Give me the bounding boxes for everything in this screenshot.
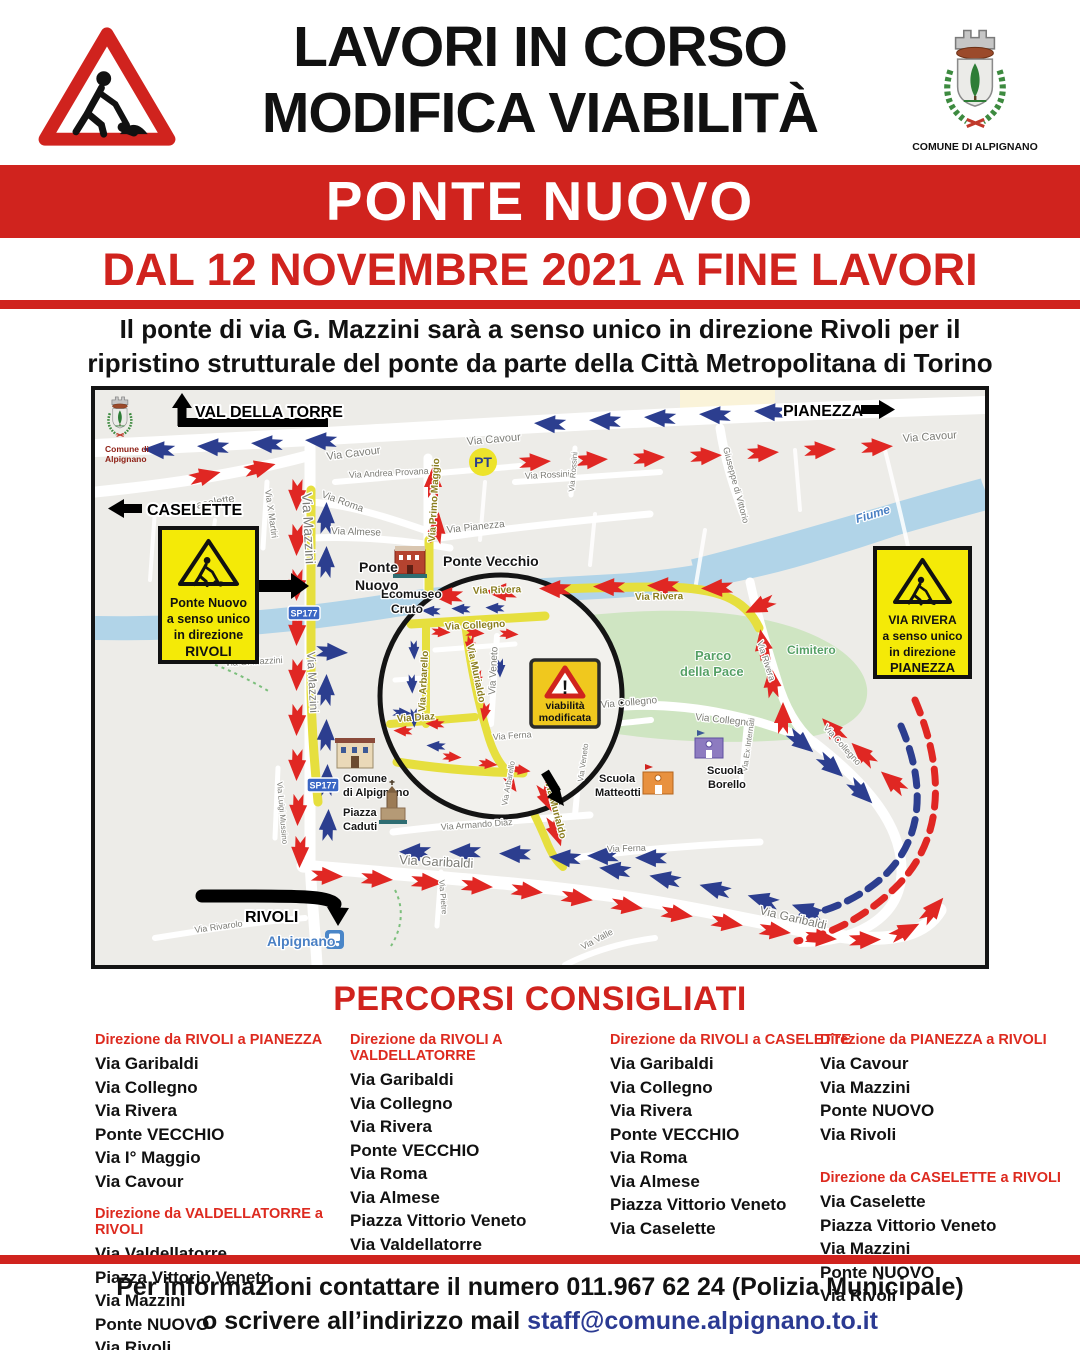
route-section-header: Direzione da VALDELLATORRE a RIVOLI bbox=[95, 1206, 345, 1238]
poi-label: Borello bbox=[708, 779, 746, 791]
exclamation-icon: ! bbox=[562, 678, 568, 699]
road-badge-sp177: SP177 bbox=[307, 778, 339, 792]
route-section-header: Direzione da CASELETTE a RIVOLI bbox=[820, 1170, 1070, 1186]
routes-title: PERCORSI CONSIGLIATI bbox=[0, 980, 1080, 1019]
road-badge-sp177: SP177 bbox=[288, 606, 320, 620]
poi-label-ponte-nuovo: Ponte bbox=[359, 559, 398, 575]
svg-text:SP177: SP177 bbox=[309, 781, 336, 791]
route-item: Ponte NUOVO bbox=[820, 1099, 1070, 1123]
poi-label-ponte-vecchio: Ponte Vecchio bbox=[443, 553, 539, 569]
route-item: Via Rivera bbox=[95, 1099, 345, 1123]
route-item: Via I° Maggio bbox=[95, 1146, 345, 1170]
route-section-header: Direzione da RIVOLI a PIANEZZA bbox=[95, 1032, 345, 1048]
poster: LAVORI IN CORSO MODIFICA VIABILITÀ COMUN… bbox=[0, 0, 1080, 1350]
municipality-crest: COMUNE DI ALPIGNANO bbox=[905, 20, 1045, 153]
poi-label: di Alpignano bbox=[343, 787, 409, 799]
poi-label-ponte-nuovo: Nuovo bbox=[355, 577, 399, 593]
route-item: Piazza Vittorio Veneto bbox=[820, 1214, 1070, 1238]
svg-text:Ponte Nuovo: Ponte Nuovo bbox=[170, 596, 247, 610]
route-item: Piazza Vittorio Veneto bbox=[350, 1209, 600, 1233]
roadworks-triangle-sign bbox=[38, 24, 176, 152]
warning-sign-via-rivera: VIA RIVERA a senso unico in direzione PI… bbox=[875, 548, 970, 677]
title-line-1: LAVORI IN CORSO bbox=[180, 14, 900, 80]
svg-text:in direzione: in direzione bbox=[174, 628, 244, 642]
date-line: DAL 12 NOVEMBRE 2021 A FINE LAVORI bbox=[0, 244, 1080, 296]
banner-ponte-nuovo: PONTE NUOVO bbox=[0, 165, 1080, 238]
route-item: Via Mazzini bbox=[820, 1076, 1070, 1100]
ecomuseo-building-icon bbox=[393, 546, 427, 578]
crest-icon bbox=[929, 20, 1021, 134]
svg-text:Alpignano: Alpignano bbox=[105, 454, 147, 464]
svg-text:modificata: modificata bbox=[539, 712, 592, 724]
crest-caption: COMUNE DI ALPIGNANO bbox=[905, 141, 1045, 153]
route-item: Via Caselette bbox=[820, 1190, 1070, 1214]
route-item: Via Rivoli bbox=[95, 1336, 345, 1350]
poi-label: Scuola bbox=[599, 773, 636, 785]
street-label-via-ferna: Via Ferna bbox=[607, 843, 646, 854]
route-item: Via Garibaldi bbox=[95, 1052, 345, 1076]
town-label-alpignano: Alpignano bbox=[267, 933, 335, 949]
route-section: Direzione da PIANEZZA a RIVOLIVia Cavour… bbox=[820, 1032, 1070, 1146]
svg-text:SP177: SP177 bbox=[290, 609, 317, 619]
town-hall-icon bbox=[335, 738, 375, 768]
route-item: Ponte VECCHIO bbox=[350, 1139, 600, 1163]
post-office-badge: PT bbox=[469, 448, 497, 476]
email-link[interactable]: staff@comune.alpignano.to.it bbox=[527, 1307, 878, 1335]
svg-text:a senso unico: a senso unico bbox=[882, 629, 962, 643]
poi-label-cimitero: Cimitero bbox=[787, 643, 836, 657]
poi-label: Matteotti bbox=[595, 787, 641, 799]
routes-column-2: Direzione da RIVOLI A VALDELLATORREVia G… bbox=[350, 1032, 600, 1256]
route-item: Via Rivera bbox=[350, 1115, 600, 1139]
route-item: Via Valdellatorre bbox=[350, 1233, 600, 1257]
route-section: Direzione da RIVOLI A VALDELLATORREVia G… bbox=[350, 1032, 600, 1256]
footer-line-2: o scrivere all’indirizzo mail staff@comu… bbox=[0, 1304, 1080, 1338]
street-label-via-almese: Via Almese bbox=[331, 526, 382, 539]
red-divider-bottom bbox=[0, 1255, 1080, 1264]
routes-column-4: Direzione da PIANEZZA a RIVOLIVia Cavour… bbox=[820, 1032, 1070, 1308]
subtitle: Il ponte di via G. Mazzini sarà a senso … bbox=[0, 312, 1080, 380]
svg-text:PIANEZZA: PIANEZZA bbox=[783, 403, 863, 420]
poi-label: Comune bbox=[343, 773, 387, 785]
traffic-map: Via Cavour Via Cavour Via Cavour Via Cas… bbox=[91, 386, 989, 969]
route-section-header: Direzione da RIVOLI A VALDELLATORRE bbox=[350, 1032, 600, 1064]
warning-sign-ponte-nuovo: Ponte Nuovo a senso unico in direzione R… bbox=[160, 528, 257, 662]
svg-text:viabilità: viabilità bbox=[545, 700, 584, 712]
route-item: Via Garibaldi bbox=[350, 1068, 600, 1092]
route-item: Via Almese bbox=[350, 1186, 600, 1210]
svg-text:CASELETTE: CASELETTE bbox=[147, 502, 242, 519]
red-divider-top bbox=[0, 300, 1080, 309]
route-item: Via Collegno bbox=[95, 1076, 345, 1100]
route-item: Via Collegno bbox=[350, 1092, 600, 1116]
page-title: LAVORI IN CORSO MODIFICA VIABILITÀ bbox=[180, 14, 900, 146]
warning-sign-viabilita-modificata: ! viabilità modificata bbox=[531, 660, 599, 727]
route-section-header: Direzione da PIANEZZA a RIVOLI bbox=[820, 1032, 1070, 1048]
poi-label-parco: della Pace bbox=[680, 664, 744, 679]
poi-label: Cruto bbox=[391, 602, 423, 616]
street-label-via-rivera: Via Rivera bbox=[473, 584, 522, 597]
svg-text:in direzione: in direzione bbox=[889, 645, 956, 659]
route-item: Ponte VECCHIO bbox=[95, 1123, 345, 1147]
footer: Per informazioni contattare il numero 01… bbox=[0, 1270, 1080, 1338]
subtitle-line-1: Il ponte di via G. Mazzini sarà a senso … bbox=[0, 312, 1080, 346]
route-item: Via Roma bbox=[350, 1162, 600, 1186]
poi-label: Caduti bbox=[343, 821, 377, 833]
svg-text:RIVOLI: RIVOLI bbox=[185, 643, 232, 659]
svg-text:VAL DELLA TORRE: VAL DELLA TORRE bbox=[195, 404, 343, 421]
subtitle-line-2: ripristino strutturale del ponte da part… bbox=[0, 346, 1080, 380]
footer-line-1: Per informazioni contattare il numero 01… bbox=[0, 1270, 1080, 1304]
route-item: Via Rivoli bbox=[820, 1123, 1070, 1147]
street-label-via-rivera: Via Rivera bbox=[635, 591, 684, 603]
traffic-map-svg: Via Cavour Via Cavour Via Cavour Via Cas… bbox=[95, 390, 985, 965]
svg-text:a senso unico: a senso unico bbox=[167, 612, 251, 626]
poi-label: Scuola bbox=[707, 765, 744, 777]
poi-label: Piazza bbox=[343, 807, 378, 819]
route-section: Direzione da RIVOLI a PIANEZZAVia Gariba… bbox=[95, 1032, 345, 1193]
svg-text:Comune di: Comune di bbox=[105, 444, 149, 454]
svg-text:VIA RIVERA: VIA RIVERA bbox=[888, 613, 957, 627]
svg-text:PT: PT bbox=[474, 454, 492, 470]
route-item: Via Cavour bbox=[820, 1052, 1070, 1076]
svg-text:RIVOLI: RIVOLI bbox=[245, 909, 298, 926]
route-item: Via Cavour bbox=[95, 1170, 345, 1194]
svg-text:PIANEZZA: PIANEZZA bbox=[890, 660, 956, 675]
footer-line-2-text: o scrivere all’indirizzo mail bbox=[202, 1307, 527, 1335]
poi-label-parco: Parco bbox=[695, 648, 731, 663]
title-line-2: MODIFICA VIABILITÀ bbox=[180, 80, 900, 146]
